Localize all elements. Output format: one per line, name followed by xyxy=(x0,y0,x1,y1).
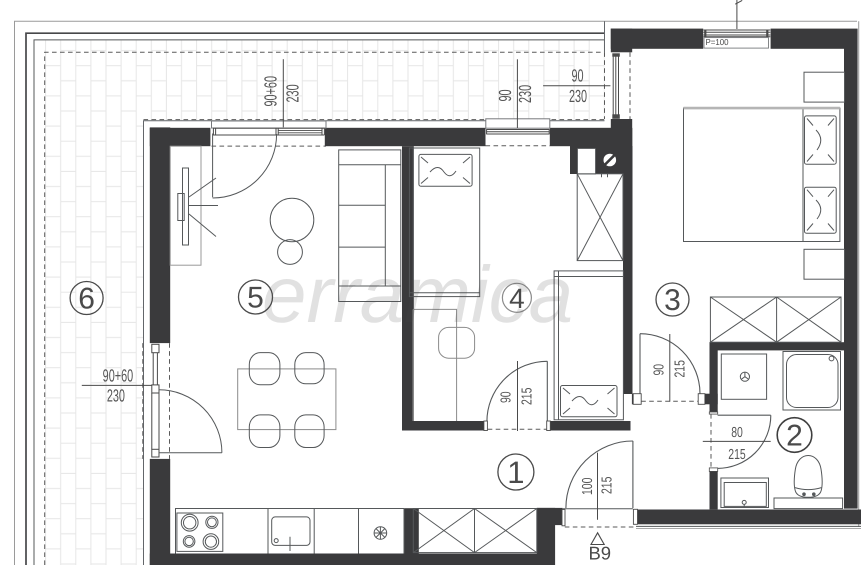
svg-text:230: 230 xyxy=(515,85,535,103)
svg-text:100: 100 xyxy=(580,478,596,495)
svg-text:230: 230 xyxy=(283,84,303,102)
svg-text:6: 6 xyxy=(78,283,95,316)
svg-text:2: 2 xyxy=(786,420,803,453)
svg-text:90: 90 xyxy=(495,89,515,101)
svg-text:215: 215 xyxy=(520,388,536,405)
svg-text:90: 90 xyxy=(571,65,583,85)
svg-text:erramica: erramica xyxy=(262,250,573,339)
svg-text:3: 3 xyxy=(664,284,681,317)
svg-text:80: 80 xyxy=(731,425,743,441)
svg-text:215: 215 xyxy=(728,447,745,463)
svg-text:P=100: P=100 xyxy=(706,37,729,47)
svg-text:90: 90 xyxy=(652,364,668,376)
svg-text:215: 215 xyxy=(600,477,616,494)
svg-text:1: 1 xyxy=(507,455,524,490)
svg-text:90: 90 xyxy=(499,391,515,403)
svg-text:230: 230 xyxy=(569,86,587,106)
svg-text:90+60: 90+60 xyxy=(103,365,134,385)
svg-text:B9: B9 xyxy=(588,543,611,564)
svg-text:90+60: 90+60 xyxy=(261,76,281,107)
svg-text:215: 215 xyxy=(673,360,689,377)
svg-text:230: 230 xyxy=(107,386,125,406)
